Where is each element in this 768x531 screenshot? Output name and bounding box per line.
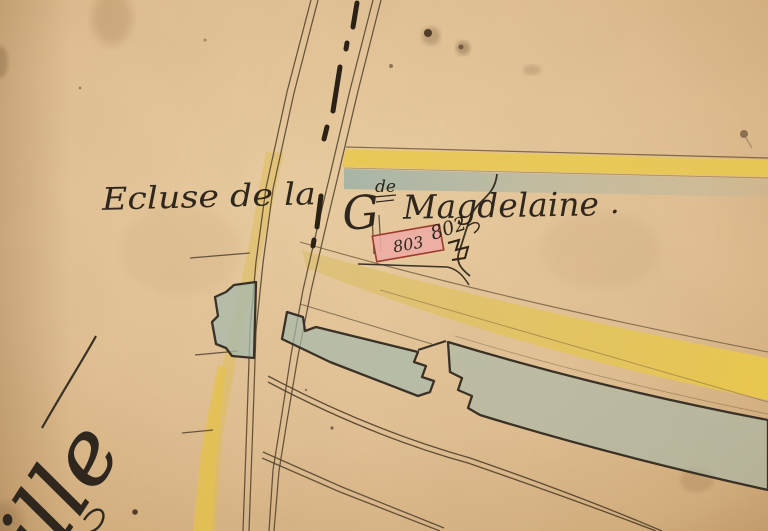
- map-title-period: .: [610, 186, 620, 221]
- map-title-name: Magdelaine: [402, 184, 600, 226]
- map-title-grande-superscript: de: [375, 177, 396, 197]
- map-title-prefix: Ecluse de la: [100, 176, 316, 218]
- historical-map-canvas: 803 802 Ecluse de la G de Magdelaine . i…: [0, 0, 768, 531]
- historical-map-scan: 803 802 Ecluse de la G de Magdelaine . i…: [0, 0, 768, 531]
